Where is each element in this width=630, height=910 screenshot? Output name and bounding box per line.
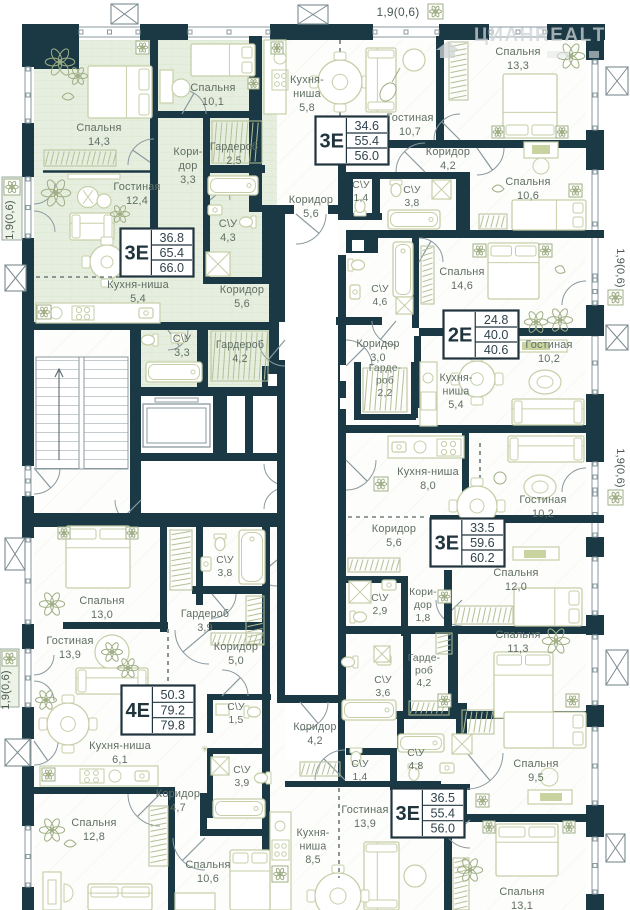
svg-text:13,0: 13,0 bbox=[91, 609, 113, 621]
svg-text:3Е: 3Е bbox=[124, 243, 148, 265]
svg-text:Спальня: Спальня bbox=[185, 859, 230, 871]
svg-text:3Е: 3Е bbox=[319, 131, 343, 153]
svg-text:Гостиная: Гостиная bbox=[113, 181, 160, 193]
svg-text:Коридор: Коридор bbox=[426, 146, 470, 158]
svg-text:1,9(0,6): 1,9(0,6) bbox=[0, 670, 12, 710]
svg-text:4,2: 4,2 bbox=[417, 678, 432, 689]
svg-text:2,5: 2,5 bbox=[226, 155, 241, 167]
svg-text:Кухня-ниша: Кухня-ниша bbox=[107, 279, 169, 291]
svg-text:Кори-: Кори- bbox=[409, 587, 437, 598]
svg-text:ниша: ниша bbox=[443, 386, 470, 398]
svg-text:4,2: 4,2 bbox=[307, 735, 322, 747]
svg-text:9,5: 9,5 bbox=[528, 772, 544, 784]
svg-text:4,8: 4,8 bbox=[409, 761, 424, 772]
svg-text:79.2: 79.2 bbox=[160, 703, 185, 717]
svg-text:3,3: 3,3 bbox=[174, 347, 190, 359]
svg-text:40.6: 40.6 bbox=[484, 343, 509, 357]
svg-text:3,9: 3,9 bbox=[197, 622, 212, 634]
svg-text:5,0: 5,0 bbox=[228, 655, 244, 667]
svg-text:С\У: С\У bbox=[407, 748, 425, 759]
svg-text:13,9: 13,9 bbox=[354, 818, 376, 830]
svg-text:10,7: 10,7 bbox=[399, 126, 421, 138]
svg-text:13,1: 13,1 bbox=[511, 900, 533, 910]
svg-text:С\У: С\У bbox=[216, 555, 234, 566]
svg-text:Гардероб: Гардероб bbox=[210, 141, 258, 153]
svg-text:3,8: 3,8 bbox=[218, 568, 233, 579]
svg-text:66.0: 66.0 bbox=[159, 261, 184, 275]
svg-text:Спальня: Спальня bbox=[513, 758, 558, 770]
svg-text:3Е: 3Е bbox=[395, 803, 419, 825]
svg-text:Гардероб: Гардероб bbox=[181, 608, 229, 620]
svg-text:Кухня-ниша: Кухня-ниша bbox=[89, 740, 151, 752]
svg-text:С\У: С\У bbox=[219, 218, 237, 230]
svg-text:Кухня-: Кухня- bbox=[439, 372, 472, 384]
svg-text:56.0: 56.0 bbox=[430, 822, 455, 836]
svg-text:55.4: 55.4 bbox=[354, 134, 379, 148]
svg-text:Спальня: Спальня bbox=[439, 266, 484, 278]
svg-text:Кухня-: Кухня- bbox=[296, 827, 329, 839]
svg-text:Гардероб: Гардероб bbox=[216, 339, 264, 351]
svg-text:5,4: 5,4 bbox=[448, 399, 463, 411]
svg-text:65.4: 65.4 bbox=[159, 246, 184, 260]
svg-text:4,7: 4,7 bbox=[170, 802, 186, 814]
svg-text:10,2: 10,2 bbox=[538, 353, 560, 365]
svg-text:2,2: 2,2 bbox=[378, 388, 393, 399]
svg-text:79.8: 79.8 bbox=[160, 719, 185, 733]
svg-text:4,2: 4,2 bbox=[232, 353, 247, 365]
svg-text:С\У: С\У bbox=[403, 185, 421, 196]
svg-text:ЦИАНREALТ: ЦИАНREALТ bbox=[474, 25, 606, 46]
svg-text:С\У: С\У bbox=[371, 593, 389, 604]
svg-text:Коридор: Коридор bbox=[214, 641, 258, 653]
svg-text:10,1: 10,1 bbox=[202, 96, 224, 108]
svg-text:12,8: 12,8 bbox=[83, 831, 105, 843]
svg-text:1,8: 1,8 bbox=[416, 613, 431, 624]
svg-text:5,6: 5,6 bbox=[234, 298, 250, 310]
svg-text:дор: дор bbox=[414, 600, 432, 611]
svg-text:Спальня: Спальня bbox=[495, 629, 540, 641]
svg-text:Гостиная: Гостиная bbox=[46, 635, 93, 647]
svg-text:Коридор: Коридор bbox=[356, 338, 399, 350]
svg-text:12,4: 12,4 bbox=[126, 195, 148, 207]
svg-text:8,5: 8,5 bbox=[305, 854, 320, 866]
svg-text:5,8: 5,8 bbox=[299, 102, 315, 114]
svg-text:Гостиная: Гостиная bbox=[386, 112, 433, 124]
svg-text:14,3: 14,3 bbox=[88, 136, 110, 148]
svg-text:13,9: 13,9 bbox=[59, 649, 81, 661]
svg-text:56.0: 56.0 bbox=[354, 149, 379, 163]
svg-text:59.6: 59.6 bbox=[470, 536, 495, 550]
svg-text:Спальня: Спальня bbox=[71, 817, 116, 829]
svg-text:1,9(0,6): 1,9(0,6) bbox=[614, 248, 626, 288]
svg-text:С\У: С\У bbox=[352, 180, 370, 191]
svg-text:Спальня: Спальня bbox=[79, 595, 124, 607]
svg-text:6,1: 6,1 bbox=[112, 754, 128, 766]
svg-text:роб: роб bbox=[376, 375, 394, 387]
svg-text:40.0: 40.0 bbox=[484, 328, 509, 342]
svg-text:Спальня: Спальня bbox=[499, 886, 544, 898]
svg-text:2Е: 2Е bbox=[448, 325, 472, 347]
svg-text:1,4: 1,4 bbox=[353, 772, 368, 783]
svg-text:36.5: 36.5 bbox=[430, 791, 455, 805]
svg-text:24.8: 24.8 bbox=[484, 313, 509, 327]
svg-text:10,6: 10,6 bbox=[517, 190, 539, 202]
svg-text:4,2: 4,2 bbox=[440, 160, 456, 172]
svg-text:С\У: С\У bbox=[374, 675, 392, 686]
svg-text:Кухня-: Кухня- bbox=[290, 74, 324, 86]
svg-text:8,0: 8,0 bbox=[420, 480, 436, 492]
svg-text:Спальня: Спальня bbox=[493, 567, 538, 579]
svg-text:✳: ✳ bbox=[201, 744, 209, 754]
svg-text:Гарде-: Гарде- bbox=[408, 653, 441, 664]
svg-text:33.5: 33.5 bbox=[470, 521, 495, 535]
svg-text:4Е: 4Е bbox=[125, 700, 149, 722]
svg-text:10,2: 10,2 bbox=[532, 508, 554, 520]
svg-text:50.3: 50.3 bbox=[160, 688, 185, 702]
svg-text:Спальня: Спальня bbox=[76, 122, 121, 134]
svg-text:С\У: С\У bbox=[351, 759, 369, 770]
svg-text:4,3: 4,3 bbox=[220, 232, 236, 244]
svg-text:3Е: 3Е bbox=[435, 533, 459, 555]
svg-text:3,6: 3,6 bbox=[376, 688, 391, 699]
svg-text:5,6: 5,6 bbox=[386, 537, 402, 549]
svg-text:Гарде-: Гарде- bbox=[369, 363, 402, 374]
svg-text:3,8: 3,8 bbox=[405, 198, 420, 209]
svg-text:14,6: 14,6 bbox=[451, 280, 473, 292]
svg-text:3,3: 3,3 bbox=[180, 174, 196, 186]
svg-text:1,9(0,6): 1,9(0,6) bbox=[614, 448, 626, 488]
svg-text:Гостиная: Гостиная bbox=[525, 339, 572, 351]
svg-text:Гостиная: Гостиная bbox=[519, 494, 566, 506]
svg-text:1,9(0,6): 1,9(0,6) bbox=[4, 200, 16, 240]
svg-text:Спальня: Спальня bbox=[505, 176, 550, 188]
svg-text:Коридор: Коридор bbox=[220, 284, 264, 296]
svg-text:Коридор: Коридор bbox=[156, 788, 200, 800]
svg-text:34.6: 34.6 bbox=[354, 119, 379, 133]
svg-text:3,9: 3,9 bbox=[235, 778, 250, 789]
svg-text:60.2: 60.2 bbox=[470, 551, 495, 565]
svg-text:Коридор: Коридор bbox=[372, 523, 416, 535]
svg-text:ниша: ниша bbox=[300, 841, 327, 853]
svg-text:Гостиная: Гостиная bbox=[341, 804, 388, 816]
svg-text:С\У: С\У bbox=[371, 284, 389, 295]
svg-text:11,3: 11,3 bbox=[507, 643, 528, 655]
svg-text:Коридор: Коридор bbox=[293, 721, 336, 733]
svg-text:5,6: 5,6 bbox=[303, 208, 319, 220]
svg-text:10,6: 10,6 bbox=[197, 873, 219, 885]
svg-text:ниша: ниша bbox=[293, 88, 321, 100]
svg-text:Коридор: Коридор bbox=[289, 194, 333, 206]
svg-text:13,3: 13,3 bbox=[507, 60, 529, 72]
svg-text:роб: роб bbox=[415, 665, 433, 677]
svg-text:Спальня: Спальня bbox=[190, 82, 235, 94]
svg-text:Кори-: Кори- bbox=[173, 146, 202, 158]
svg-text:36.8: 36.8 bbox=[159, 231, 184, 245]
svg-text:12,0: 12,0 bbox=[505, 581, 527, 593]
svg-text:Кухня-ниша: Кухня-ниша bbox=[397, 466, 459, 478]
svg-text:1,9(0,6): 1,9(0,6) bbox=[377, 5, 420, 19]
svg-text:С\У: С\У bbox=[227, 702, 245, 713]
svg-text:2,9: 2,9 bbox=[373, 606, 388, 617]
svg-text:55.4: 55.4 bbox=[430, 806, 455, 820]
svg-text:С\У: С\У bbox=[173, 333, 191, 345]
svg-text:Спальня: Спальня bbox=[495, 46, 540, 58]
svg-text:5,4: 5,4 bbox=[130, 293, 146, 305]
svg-text:1,4: 1,4 bbox=[354, 193, 369, 204]
svg-text:С\У: С\У bbox=[233, 765, 251, 776]
svg-text:1,5: 1,5 bbox=[229, 715, 244, 726]
svg-text:дор: дор bbox=[178, 160, 197, 172]
svg-text:4,6: 4,6 bbox=[373, 297, 388, 308]
